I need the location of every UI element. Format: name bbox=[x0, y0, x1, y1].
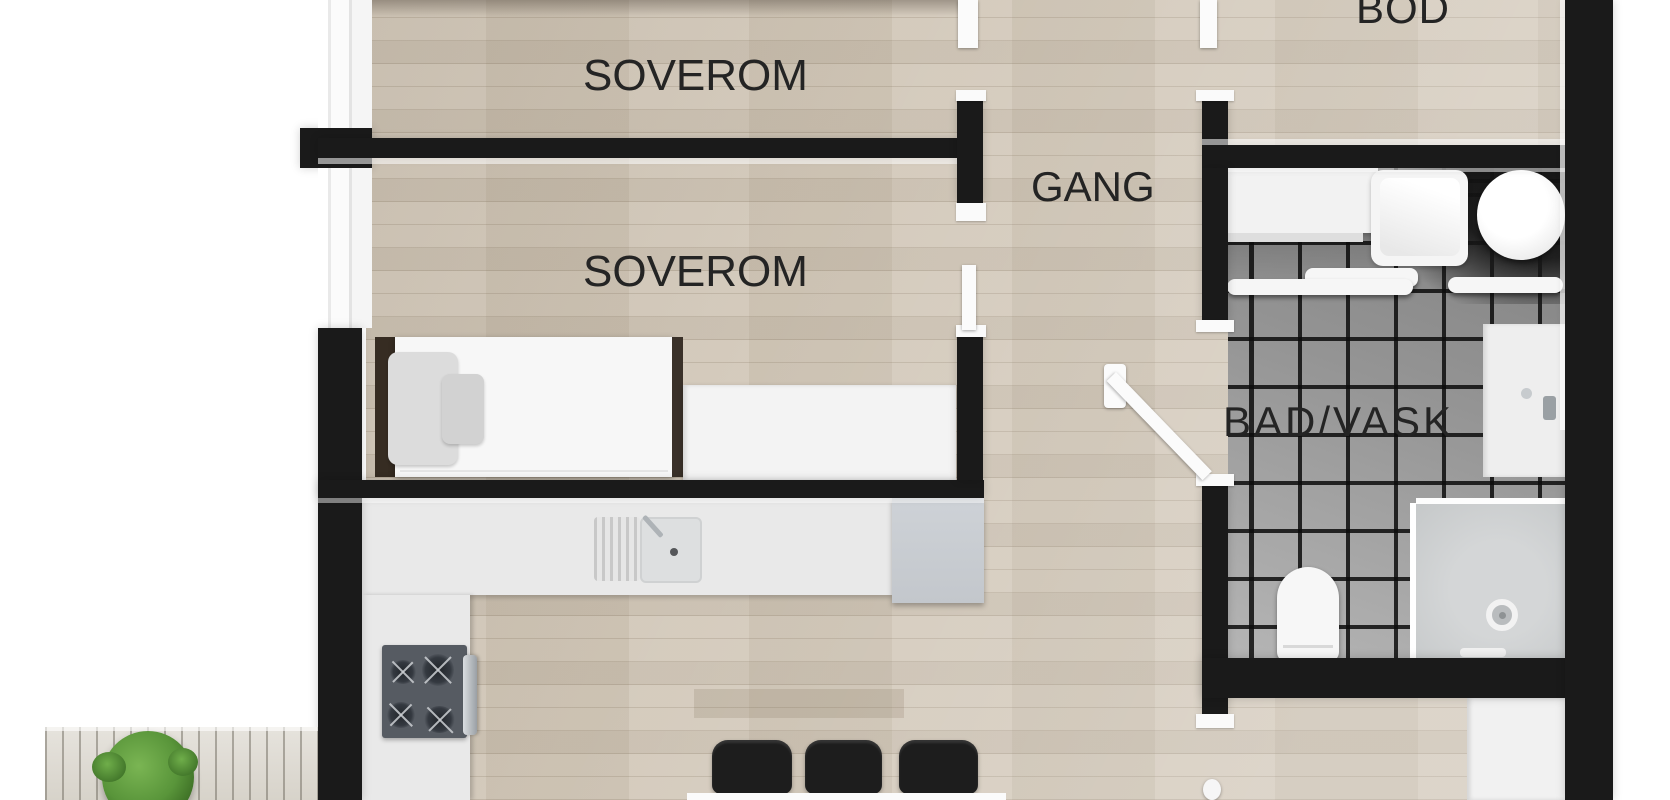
wall-shelf bbox=[1227, 279, 1413, 295]
plant-leaf-cluster bbox=[168, 748, 198, 776]
door-leaf-bedroom2 bbox=[962, 265, 976, 330]
plant-leaf-cluster bbox=[92, 752, 126, 782]
burner bbox=[424, 706, 455, 733]
bed-seam bbox=[400, 470, 668, 472]
vanity-soap bbox=[1521, 388, 1532, 399]
wall-bath-north bbox=[1202, 145, 1565, 168]
floor-lamp bbox=[1203, 779, 1221, 800]
floor-plan: SOVEROM SOVEROM GANG BOD BAD/VASK bbox=[0, 0, 1670, 800]
door-jamb bbox=[1196, 714, 1234, 728]
door-leaf-bod bbox=[1200, 0, 1217, 48]
vanity-faucet bbox=[1543, 396, 1556, 420]
bed-footboard bbox=[672, 337, 683, 477]
wall-bath-west-upper bbox=[1202, 168, 1228, 322]
burner bbox=[390, 660, 416, 684]
wall-hall-west-upper bbox=[957, 101, 983, 203]
wall-edge-highlight bbox=[1560, 0, 1565, 430]
wall-edge-highlight bbox=[318, 498, 984, 503]
pillow bbox=[442, 374, 484, 444]
tall-cabinet bbox=[892, 498, 984, 603]
wall-bedroom2-south bbox=[318, 480, 984, 498]
dining-chair bbox=[712, 740, 792, 794]
entry-cabinet bbox=[1467, 698, 1565, 800]
door-jamb bbox=[956, 203, 986, 221]
door-jamb bbox=[956, 90, 986, 101]
wall-edge-highlight bbox=[318, 158, 958, 164]
shower-pan bbox=[1416, 503, 1565, 660]
wall-edge-highlight bbox=[1202, 139, 1565, 145]
wall-bedrooms-divider bbox=[318, 138, 958, 158]
floor-plank-shade bbox=[694, 689, 904, 718]
deck-edge bbox=[45, 727, 318, 731]
wall-shelf bbox=[1448, 277, 1563, 293]
shower-glass bbox=[1410, 503, 1416, 660]
bathroom-counter bbox=[1228, 165, 1378, 233]
wall-bath-south bbox=[1202, 658, 1565, 698]
shower-tap bbox=[1460, 648, 1506, 657]
dining-chair bbox=[899, 740, 978, 794]
sink-drainer bbox=[594, 517, 640, 581]
washing-machine-lid bbox=[1380, 178, 1460, 256]
room-label-soverom-2: SOVEROM bbox=[583, 247, 808, 297]
water-heater bbox=[1477, 170, 1565, 260]
wall-left-lower bbox=[318, 328, 362, 800]
room-label-bod: BOD bbox=[1356, 0, 1450, 33]
dining-table bbox=[687, 793, 1006, 800]
desk-bench bbox=[683, 385, 956, 480]
wall-hall-west-lower bbox=[957, 330, 983, 480]
room-label-soverom-1: SOVEROM bbox=[583, 51, 808, 101]
bathroom-counter-edge bbox=[1228, 233, 1363, 242]
dining-chair bbox=[805, 740, 882, 794]
door-jamb bbox=[1196, 90, 1234, 101]
wall-edge-highlight bbox=[1228, 168, 1565, 172]
door-jamb bbox=[1196, 320, 1234, 332]
window bbox=[318, 0, 372, 128]
toilet-seam bbox=[1283, 645, 1333, 648]
burner bbox=[422, 654, 454, 686]
oven-handle bbox=[463, 655, 477, 735]
shower-glass-top bbox=[1416, 498, 1565, 504]
top-cut-shadow bbox=[366, 0, 958, 16]
room-label-bad-vask: BAD/VASK bbox=[1223, 398, 1454, 446]
room-label-gang: GANG bbox=[1031, 163, 1155, 211]
shower-head-center bbox=[1499, 612, 1506, 619]
door-leaf-bedroom1 bbox=[958, 0, 978, 48]
burner bbox=[387, 702, 415, 728]
wall-exterior-right bbox=[1565, 0, 1613, 800]
sink-drain bbox=[670, 548, 678, 556]
window bbox=[318, 168, 372, 328]
